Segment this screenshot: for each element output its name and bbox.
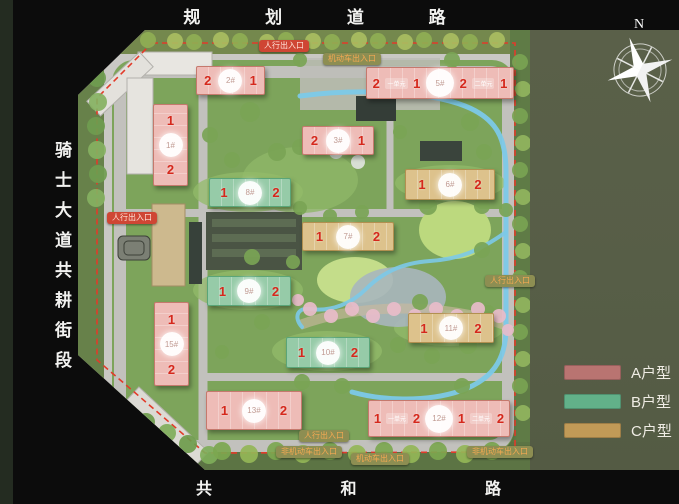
building-number-label: 12# [425,405,453,433]
unit-number: 2 [474,178,481,191]
unit-number: 2 [474,322,481,335]
unit-number: 1 [219,285,226,298]
non-motor-entrance-south: 非机动车出入口 [276,446,342,458]
pedestrian-entrance-north: 人行出入口 [259,40,309,52]
building-number-label: 5# [426,69,454,97]
building-number-label: 13# [242,399,266,423]
building-1: 11#2 [153,104,188,186]
unit-number: 1 [413,77,420,90]
non-motor-entrance-southeast: 非机动车出入口 [467,446,533,458]
building-number-label: 7# [336,225,360,249]
building-12: 1一单元212#1二单元2 [368,400,510,437]
legend-swatch-b [564,394,621,409]
pedestrian-entrance-west: 人行出入口 [107,212,157,224]
building-15: 115#2 [154,302,189,386]
building-number-label: 11# [439,316,463,340]
unit-number: 1 [168,313,175,326]
unit-number: 2 [167,163,174,176]
unit-number: 1 [167,114,174,127]
unit-number: 1 [418,178,425,191]
legend-label-a: A户型 [631,362,671,383]
north-road-band: 规 划 道 路 [0,0,679,30]
legend-item-c: C户型 [564,420,672,441]
building-2: 22#1 [196,66,265,95]
building-11: 111#2 [408,313,494,343]
site-plan: 11#222#123#12一单元15#2二单元116#217#218#219#2… [78,30,530,470]
unit-number: 1 [458,412,465,425]
unit-number: 1 [316,230,323,243]
building-number-label: 3# [326,129,350,153]
unit-name-label: 二单元 [472,78,494,89]
compass-rose-icon: N [598,4,679,110]
unit-number: 1 [298,346,305,359]
unit-number: 1 [374,412,381,425]
building-number-label: 10# [316,341,340,365]
south-road-label: 共 和 路 [196,475,563,499]
unit-number: 1 [250,74,257,87]
unit-number: 2 [272,186,279,199]
building-number-label: 2# [218,69,242,93]
legend-swatch-a [564,365,621,380]
compass-north-label: N [634,17,644,32]
unit-number: 2 [311,134,318,147]
unit-number: 2 [204,74,211,87]
unit-number: 1 [220,186,227,199]
building-number-label: 9# [237,279,261,303]
unit-number: 1 [221,404,228,417]
south-road-band: 共 和 路 [0,470,679,504]
building-number-label: 1# [159,133,183,157]
unit-number: 1 [358,134,365,147]
unit-number: 2 [280,404,287,417]
pedestrian-entrance-east: 人行出入口 [485,275,535,287]
unit-name-label: 一单元 [385,78,407,89]
pedestrian-entrance-south: 人行出入口 [299,430,349,442]
vehicle-entrance-south: 机动车出入口 [351,453,409,465]
legend-item-a: A户型 [564,362,671,383]
building-9: 19#2 [207,276,291,306]
unit-number: 1 [420,322,427,335]
unit-number: 2 [373,230,380,243]
building-number-label: 15# [160,332,184,356]
vehicle-entrance-north: 机动车出入口 [323,53,381,65]
unit-number: 2 [168,363,175,376]
legend-swatch-c [564,423,621,438]
building-13: 113#2 [206,391,302,430]
legend-label-c: C户型 [631,420,672,441]
unit-number: 1 [500,77,507,90]
building-10: 110#2 [286,337,370,368]
unit-name-label: 一单元 [386,413,408,424]
building-5: 2一单元15#2二单元1 [366,67,514,99]
unit-number: 2 [373,77,380,90]
unit-number: 2 [413,412,420,425]
building-number-label: 8# [238,181,262,205]
unit-number: 2 [351,346,358,359]
building-6: 16#2 [405,169,495,200]
unit-name-label: 二单元 [470,413,492,424]
left-edge-strip [0,0,13,504]
north-road-label: 规 划 道 路 [183,3,475,28]
legend-item-b: B户型 [564,391,671,412]
legend-label-b: B户型 [631,391,671,412]
west-road-label: 骑士大道共耕街段 [49,141,74,381]
unit-number: 2 [272,285,279,298]
building-8: 18#2 [209,178,291,207]
building-3: 23#1 [302,126,374,155]
building-7: 17#2 [302,222,394,251]
unit-number: 2 [497,412,504,425]
site-plan-screenshot: 11#222#123#12一单元15#2二单元116#217#218#219#2… [0,0,679,504]
building-number-label: 6# [438,173,462,197]
unit-number: 2 [460,77,467,90]
